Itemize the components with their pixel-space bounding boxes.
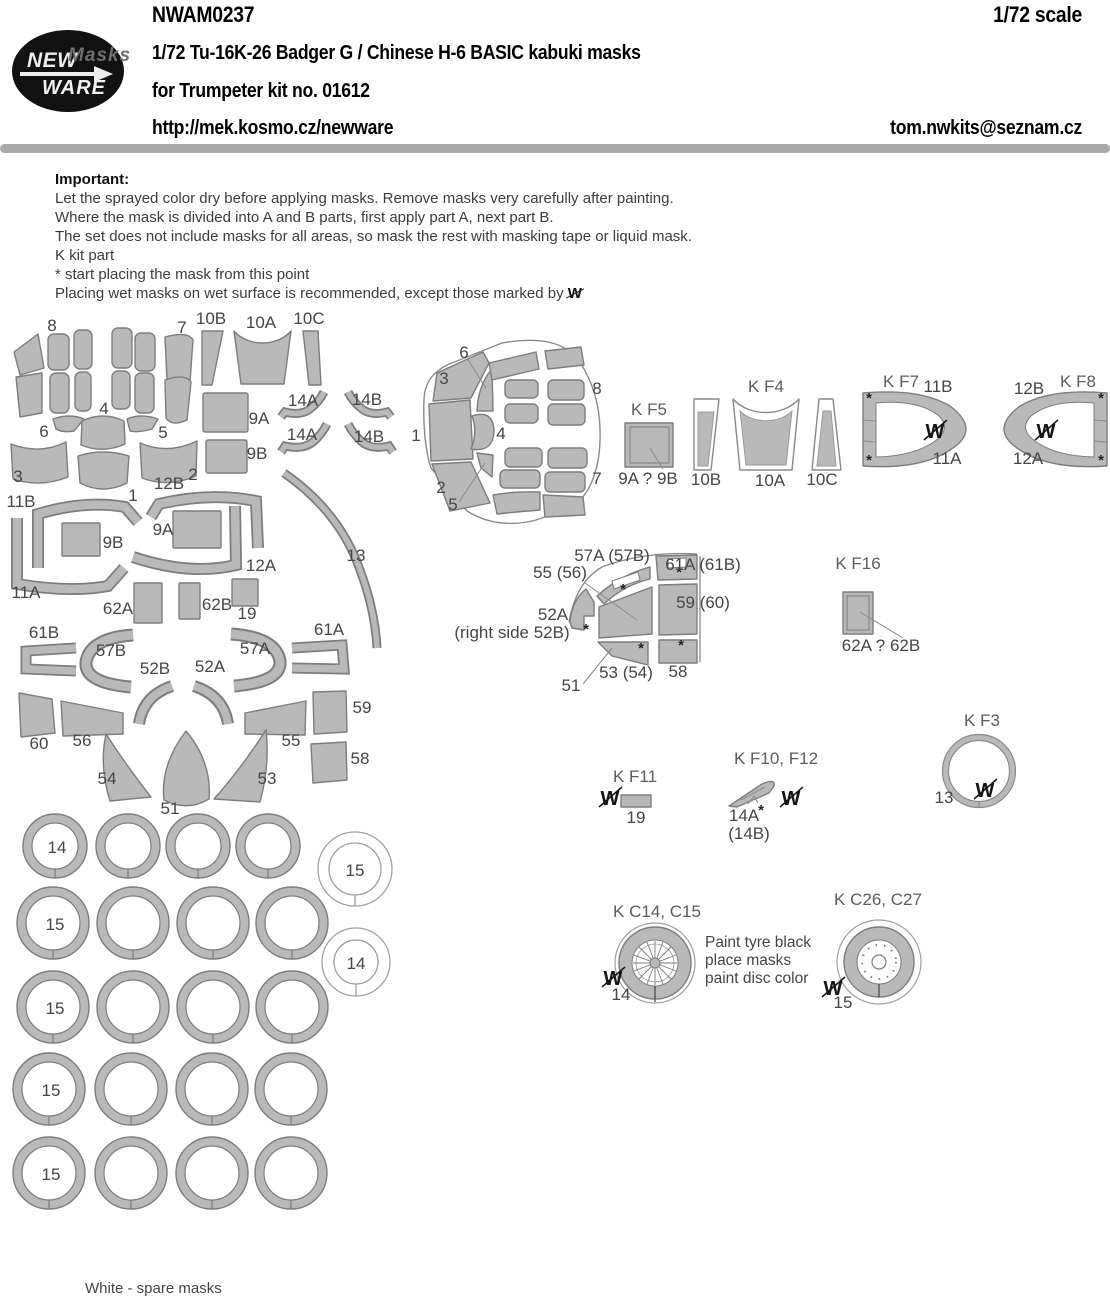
left-cluster-shapes: [11, 328, 393, 806]
part-label: 15: [834, 993, 853, 1012]
wheel-rings-grid: 14 15 15 15 15 15 14: [13, 814, 392, 1209]
start-point-star: *: [866, 390, 872, 407]
part-label: 53: [258, 769, 277, 788]
part-label: 12B: [1014, 379, 1044, 398]
part-label: 10C: [806, 470, 837, 489]
group-title: K F10, F12: [734, 749, 818, 768]
part-label: 8: [47, 316, 56, 335]
group-title: K F11: [613, 767, 657, 786]
ring-label: 14: [48, 838, 67, 857]
part-label: 6: [459, 343, 468, 362]
part-label: 9A: [153, 520, 174, 539]
group-kf3: K F3 13 W: [935, 711, 1016, 808]
part-label: 12A: [1013, 449, 1044, 468]
part-label: 59 (60): [676, 593, 730, 612]
part-label: 59: [353, 698, 372, 717]
important-line: * start placing the mask from this point: [55, 265, 692, 284]
newware-logo: NEW Masks WARE: [12, 30, 124, 112]
group-kf4: K F4 10B 10A 10C: [691, 377, 841, 490]
paint-note-line: place masks: [705, 952, 791, 969]
email-address[interactable]: tom.nwkits@seznam.cz: [890, 117, 1082, 140]
important-line: The set does not include masks for all a…: [55, 227, 692, 246]
part-label: 12B: [154, 474, 184, 493]
paint-note-line: Paint tyre black: [705, 934, 811, 951]
group-kf5: K F5 9A ? 9B: [618, 400, 678, 488]
group-kc26-c27: K C26, C27 W 15: [822, 890, 922, 1012]
part-label: 1: [128, 486, 137, 505]
part-label: 5: [448, 495, 457, 514]
part-label: 58: [351, 749, 370, 768]
part-label: 14A: [288, 391, 319, 410]
important-heading: Important:: [55, 170, 692, 189]
important-line: Let the sprayed color dry before applyin…: [55, 189, 692, 208]
start-point-star: *: [620, 581, 626, 598]
start-point-star: *: [638, 640, 644, 657]
part-label: 12A: [246, 556, 277, 575]
header-divider-bar: [0, 144, 1110, 153]
part-label: 62A ? 62B: [842, 636, 920, 655]
part-label: 52A: [538, 605, 569, 624]
group-title: K F16: [835, 554, 880, 573]
part-label: 3: [439, 369, 448, 388]
ring-label: 15: [42, 1165, 61, 1184]
part-label: 57B: [96, 641, 126, 660]
part-label: 10A: [246, 313, 277, 332]
ring-label: 15: [346, 861, 365, 880]
part-label: 7: [592, 469, 601, 488]
group-kc14-c15: K C14, C15 W 14 Paint tyre black place m…: [602, 902, 811, 1004]
part-label: 2: [188, 465, 197, 484]
part-label: 52A: [195, 657, 226, 676]
part-label: 2: [436, 478, 445, 497]
part-label: 1: [411, 426, 420, 445]
group-kf16: K F16 62A ? 62B: [835, 554, 920, 655]
part-label: 11B: [924, 377, 953, 396]
ring-label: 15: [42, 1081, 61, 1100]
part-label: 10B: [691, 470, 721, 489]
fan-cluster: * * * * * 57A (57B) 55 (56) 61A (61B) 59…: [454, 546, 740, 695]
group-kf11: K F11 W 19: [599, 767, 657, 827]
part-label: 51: [562, 676, 581, 695]
start-point-star: *: [678, 637, 684, 654]
ring-label: 14: [347, 954, 366, 973]
part-label: 9A ? 9B: [618, 469, 678, 488]
part-label: 55 (56): [533, 563, 587, 582]
part-label: (14B): [728, 824, 770, 843]
part-label: 11B: [7, 492, 36, 511]
start-point-star: *: [1098, 452, 1104, 469]
part-label: 19: [238, 604, 257, 623]
start-point-star: *: [866, 452, 872, 469]
website-link[interactable]: http://mek.kosmo.cz/newware: [152, 117, 393, 140]
part-label: 54: [98, 769, 117, 788]
group-title: K F3: [964, 711, 1000, 730]
important-line: K kit part: [55, 246, 692, 265]
part-label: 57A: [240, 639, 271, 658]
group-title: K C26, C27: [834, 890, 922, 909]
part-label: 10C: [293, 309, 324, 328]
part-label: 51: [161, 799, 180, 818]
scale-label: 1/72 scale: [993, 2, 1082, 28]
group-kf10-f12: K F10, F12 W 14A * (14B): [728, 749, 818, 843]
paint-note-line: paint disc color: [705, 970, 808, 987]
part-label: 9A: [249, 409, 270, 428]
part-label: 10A: [755, 471, 786, 490]
ring-label: 15: [46, 915, 65, 934]
part-label: 58: [669, 662, 688, 681]
sheet-subtitle: for Trumpeter kit no. 01612: [152, 80, 370, 103]
logo-text-ware: WARE: [42, 77, 106, 100]
part-label: 9B: [103, 533, 124, 552]
part-label: 4: [99, 399, 108, 418]
part-label: 19: [627, 808, 646, 827]
group-title: K C14, C15: [613, 902, 701, 921]
part-label: 14B: [354, 427, 384, 446]
part-label: 14B: [352, 390, 382, 409]
part-label: 11A: [933, 449, 963, 468]
part-label: 55: [282, 731, 301, 750]
part-label: 61B: [29, 623, 59, 642]
product-code: NWAM0237: [152, 2, 254, 28]
logo-text-masks: Masks: [68, 45, 131, 67]
part-label: 52B: [140, 659, 170, 678]
part-label: 62B: [202, 595, 232, 614]
part-label: 60: [30, 734, 49, 753]
start-point-star: *: [758, 802, 764, 819]
part-label: 53 (54): [599, 663, 653, 682]
part-label: 10B: [196, 309, 226, 328]
group-title: K F8: [1060, 372, 1096, 391]
part-label: 62A: [103, 599, 134, 618]
group-kf7: K F7 11B * * W 11A: [863, 372, 966, 469]
part-label: 8: [592, 379, 601, 398]
part-label: 6: [39, 422, 48, 441]
part-label: 13: [347, 546, 366, 565]
part-label: 5: [158, 423, 167, 442]
part-label: 61A (61B): [665, 555, 741, 574]
group-title: K F7: [883, 372, 919, 391]
part-label: 61A: [314, 620, 345, 639]
part-label: 11A: [12, 583, 42, 602]
nose-glazing-diagram: 6 3 1 2 5 4 8 7: [411, 340, 601, 523]
part-label: 9B: [247, 444, 268, 463]
part-label: 14: [612, 985, 631, 1004]
start-point-star: *: [583, 621, 589, 638]
group-kf8: 12B K F8 * * W 12A: [1004, 372, 1107, 469]
group-title: K F5: [631, 400, 667, 419]
part-label: 14A: [729, 806, 760, 825]
part-label: 13: [935, 788, 954, 807]
start-point-star: *: [1098, 390, 1104, 407]
masks-diagram: 8 7 10B 10A 10C 4 6 5 3 2 12B 1 9A 9B 14…: [0, 300, 1110, 1300]
important-line: Where the mask is divided into A and B p…: [55, 208, 692, 227]
part-label: 7: [177, 318, 186, 337]
group-title: K F4: [748, 377, 784, 396]
spare-masks-note: White - spare masks: [85, 1280, 222, 1297]
instruction-sheet: NEW Masks WARE NWAM0237 1/72 scale 1/72 …: [0, 0, 1110, 1300]
part-label: 56: [73, 731, 92, 750]
part-label: 4: [496, 424, 505, 443]
ring-label: 15: [46, 999, 65, 1018]
sheet-title: 1/72 Tu-16K-26 Badger G / Chinese H-6 BA…: [152, 42, 641, 65]
part-label: 3: [13, 467, 22, 486]
part-label: (right side 52B): [454, 623, 569, 642]
important-notes: Important: Let the sprayed color dry bef…: [55, 170, 692, 303]
part-label: 14A: [287, 425, 318, 444]
